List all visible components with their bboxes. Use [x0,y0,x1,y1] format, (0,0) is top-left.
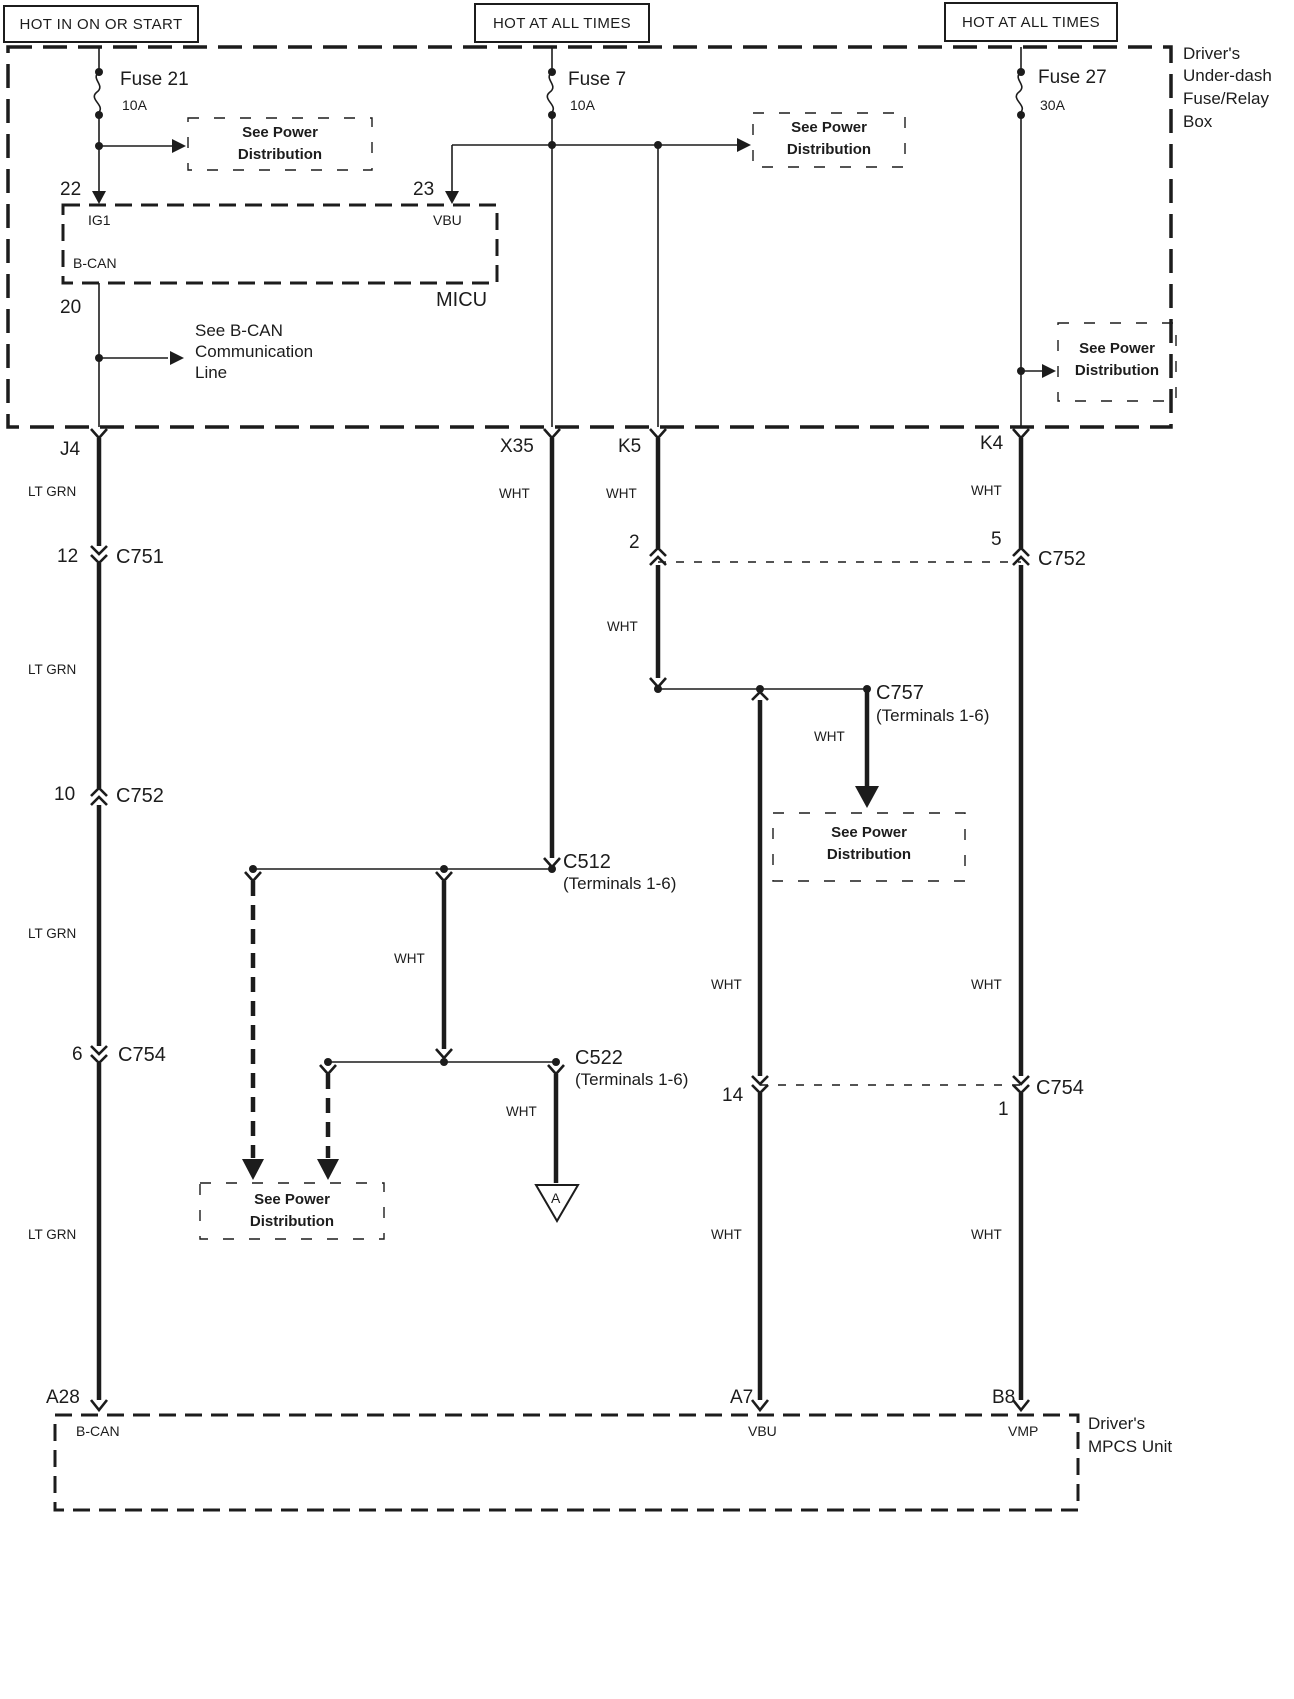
spd-note-line2: Distribution [1058,360,1176,382]
fuse-21-rating: 10A [122,98,147,113]
chevron-j4 [91,429,107,438]
terminal-5: 5 [991,530,1002,550]
wire-color-j4-4: LT GRN [28,1228,76,1242]
connector-joint-lines [253,689,867,1062]
fuse-box-title-4: Box [1183,113,1212,131]
wire-color-x35: WHT [499,487,530,501]
spd-note-line2: Distribution [200,1211,384,1233]
connector-c751: C751 [116,547,164,568]
mpcs-pin-bcan: B-CAN [76,1424,120,1439]
terminal-14: 14 [722,1086,743,1106]
connector-k5: K5 [618,437,641,457]
chevron-x35 [544,429,560,438]
fuse-7-symbol [547,72,553,115]
spd-note-bottom-left: See Power Distribution [200,1189,384,1233]
mpcs-pin-vmp: VMP [1008,1424,1038,1439]
wire-color-j4-3: LT GRN [28,927,76,941]
connector-c752-right: C752 [1038,549,1086,570]
wire-color-a7-1: WHT [711,978,742,992]
wire-color-j4-2: LT GRN [28,663,76,677]
connector-c512-terminals: (Terminals 1-6) [563,875,676,893]
mpcs-name-2: MPCS Unit [1088,1438,1172,1456]
chevron-b8 [1013,1400,1029,1410]
arrowheads [92,138,1056,1180]
chevron-c512-left [245,872,261,881]
spd-note-line1: See Power [753,117,905,139]
micu-terminal-22: 22 [60,180,81,200]
spd-note-right: See Power Distribution [1058,338,1176,382]
spd-note-line1: See Power [773,822,965,844]
wiring-diagram-page: HOT IN ON OR START HOT AT ALL TIMES HOT … [0,0,1294,1699]
fuse-7-label: Fuse 7 [568,70,626,90]
micu-pin-ig1: IG1 [88,213,111,228]
chevron-c522-left [320,1065,336,1074]
micu-box-outline [63,205,497,283]
fuse-7-rating: 10A [570,98,595,113]
spd-note-line1: See Power [188,122,372,144]
spd-note-line1: See Power [1058,338,1176,360]
mpcs-name-1: Driver's [1088,1415,1145,1433]
connector-c757: C757 [876,683,924,704]
connector-c754-left: C754 [118,1045,166,1066]
hot-label-left: HOT IN ON OR START [3,5,199,43]
mpcs-terminal-a28: A28 [46,1388,80,1408]
fuse-box-title-3: Fuse/Relay [1183,90,1269,108]
chevron-c751 [91,546,107,563]
connector-c754-right: C754 [1036,1078,1084,1099]
connector-c752-left: C752 [116,786,164,807]
fuse-21-symbol [94,72,100,115]
spd-note-top-left: See Power Distribution [188,122,372,166]
arrow-term-22 [92,191,106,204]
fuse-27-rating: 30A [1040,98,1065,113]
mpcs-box-outline [55,1415,1078,1510]
bcan-note-3: Line [195,364,227,382]
wire-color-c757: WHT [814,730,845,744]
reference-triangle-a-letter: A [551,1191,560,1206]
wire-color-c522-right: WHT [506,1105,537,1119]
arrow-c522-branch [317,1159,339,1180]
terminal-6: 6 [72,1045,83,1065]
chevron-c757-a7 [752,692,768,700]
fuse-box-title-1: Driver's [1183,45,1240,63]
wire-color-k5-1: WHT [606,487,637,501]
micu-terminal-20: 20 [60,298,81,318]
chevron-k5 [650,429,666,438]
wire-color-k5-2: WHT [607,620,638,634]
wire-color-c512-mid: WHT [394,952,425,966]
arrow-spd-mid [737,138,751,152]
wire-color-j4-1: LT GRN [28,485,76,499]
micu-pin-vbu: VBU [433,213,462,228]
dashed-branch-wires [253,881,328,1158]
spd-note-c757: See Power Distribution [773,822,965,866]
chevron-a7 [752,1400,768,1410]
chevron-c752-left [91,788,107,805]
mpcs-terminal-a7: A7 [730,1388,753,1408]
spd-note-line2: Distribution [753,139,905,161]
chevron-a28 [91,1400,107,1410]
arrow-spd-right [1042,364,1056,378]
spd-note-top-mid: See Power Distribution [753,117,905,161]
mpcs-pin-vbu: VBU [748,1424,777,1439]
harness-wires [99,438,1021,1400]
connector-c757-terminals: (Terminals 1-6) [876,707,989,725]
hot-label-mid: HOT AT ALL TIMES [474,3,650,43]
hot-label-right: HOT AT ALL TIMES [944,2,1118,42]
wire-color-k4-1: WHT [971,484,1002,498]
chevron-k4 [1013,429,1029,438]
terminal-12: 12 [57,547,78,567]
chevron-c754-left [91,1046,107,1063]
connector-chevrons [91,429,1029,1410]
fuse-27-label: Fuse 27 [1038,68,1107,88]
hot-label-mid-text: HOT AT ALL TIMES [493,15,631,32]
connector-k4: K4 [980,434,1003,454]
junction-dots [95,68,1025,1066]
spd-note-line2: Distribution [773,844,965,866]
wire-color-k4-3: WHT [971,1228,1002,1242]
arrow-bcan-note [170,351,184,365]
micu-terminal-23: 23 [413,180,434,200]
fuse-27-symbol [1016,72,1022,115]
connector-c522-terminals: (Terminals 1-6) [575,1071,688,1089]
terminal-2: 2 [629,533,640,553]
spd-note-line1: See Power [200,1189,384,1211]
terminal-10: 10 [54,785,75,805]
connector-c512: C512 [563,852,611,873]
bcan-note-1: See B-CAN [195,322,283,340]
mpcs-terminal-b8: B8 [992,1388,1015,1408]
hot-label-left-text: HOT IN ON OR START [19,16,182,33]
bcan-note-2: Communication [195,343,313,361]
fuse-21-label: Fuse 21 [120,70,189,90]
arrow-term-23 [445,191,459,204]
connector-j4: J4 [60,440,80,460]
wire-color-a7-2: WHT [711,1228,742,1242]
chevron-c512-mid [436,872,452,881]
arrow-spd-left [172,139,186,153]
micu-pin-bcan: B-CAN [73,256,117,271]
arrow-c512-branch [242,1159,264,1180]
wire-color-k4-2: WHT [971,978,1002,992]
fuse-box-title-2: Under-dash [1183,67,1272,85]
terminal-1: 1 [998,1100,1009,1120]
connector-c522: C522 [575,1048,623,1069]
micu-name: MICU [436,290,487,311]
spd-note-line2: Distribution [188,144,372,166]
arrow-c757-spd [855,786,879,808]
chevron-c522-top [436,1049,452,1058]
connector-x35: X35 [500,437,534,457]
chevron-c522-right [548,1065,564,1074]
hot-label-right-text: HOT AT ALL TIMES [962,14,1100,31]
